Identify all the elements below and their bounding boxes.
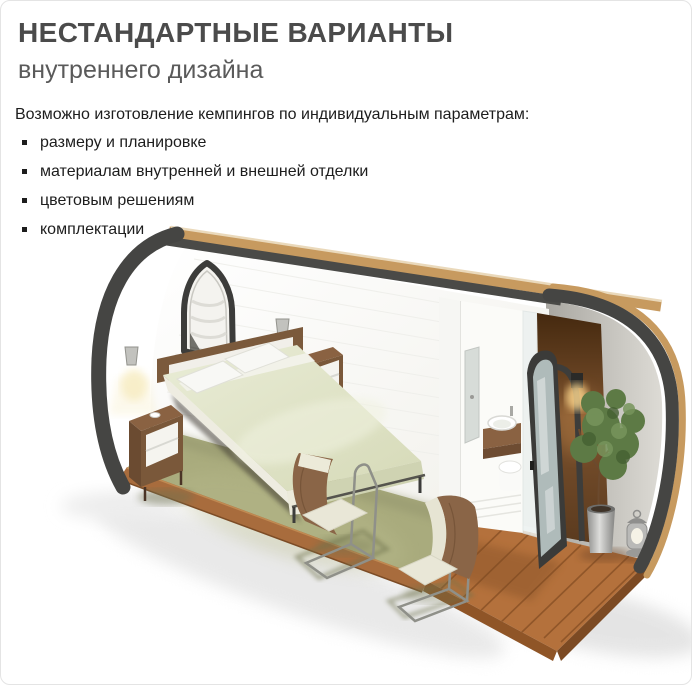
page-title: НЕСТАНДАРТНЫЕ ВАРИАНТЫ [18,17,668,49]
bullet-label: цветовым решениям [40,191,194,211]
pod-interior-illustration: 3D-разрез кемпинг-модуля: спальня с кров… [1,211,692,685]
list-item: цветовым решениям [15,191,655,211]
list-item: размеру и планировке [15,133,655,153]
bullet-label: материалам внутренней и внешней отделки [40,162,368,182]
wall-sconce-left [109,347,157,415]
page-subtitle: внутреннего дизайна [18,55,668,85]
bullet-label: размеру и планировке [40,133,206,153]
door-handle [530,461,534,470]
list-item: материалам внутренней и внешней отделки [15,162,655,182]
intro-paragraph: Возможно изготовление кемпингов по индив… [15,105,655,126]
header: НЕСТАНДАРТНЫЕ ВАРИАНТЫ внутреннего дизай… [18,17,668,85]
page: НЕСТАНДАРТНЫЕ ВАРИАНТЫ внутреннего дизай… [0,0,692,685]
bullet-square-icon [22,140,27,145]
plant-pot [587,509,615,553]
bullet-square-icon [22,169,27,174]
bullet-square-icon [22,198,27,203]
